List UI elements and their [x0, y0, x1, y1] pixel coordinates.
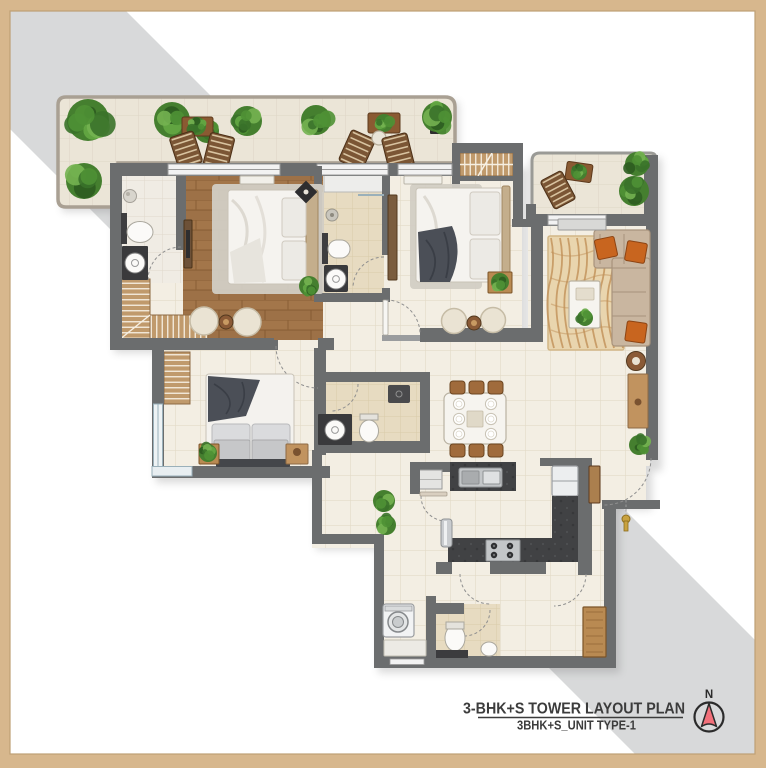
svg-text:N: N	[705, 689, 713, 701]
svg-text:3-BHK+S TOWER LAYOUT PLAN: 3-BHK+S TOWER LAYOUT PLAN	[463, 701, 685, 718]
svg-text:3BHK+S_UNIT TYPE-1: 3BHK+S_UNIT TYPE-1	[517, 719, 636, 733]
